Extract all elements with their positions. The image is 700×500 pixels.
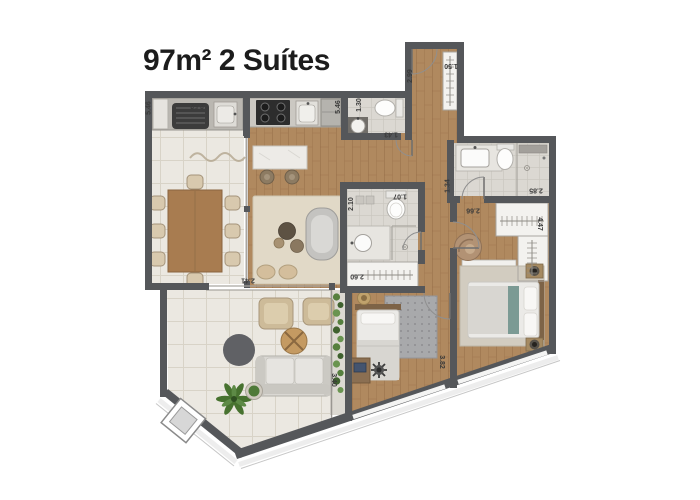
toilet-icon <box>497 144 514 170</box>
wall <box>340 182 425 189</box>
dim-entry-closet: 1.50 <box>444 62 458 69</box>
wall <box>340 186 347 292</box>
wall <box>405 42 464 49</box>
dim-bath2-width: 2.85 <box>529 187 543 194</box>
dim-suite1-depth: 3.82 <box>438 355 445 369</box>
dim-grill-counter: 2.52 <box>190 102 204 109</box>
cooktop-icon <box>256 100 290 125</box>
potted-plant-icon <box>246 383 263 400</box>
dining-chair <box>150 196 165 210</box>
bar-stool-icon <box>260 170 274 184</box>
wall <box>549 136 556 354</box>
pouf-icon <box>257 265 275 279</box>
dining-chair <box>225 224 240 238</box>
desk-chair-icon <box>371 362 387 378</box>
dining-chair <box>150 224 165 238</box>
wall <box>145 283 206 290</box>
wall <box>405 91 412 140</box>
shower-niche <box>519 145 547 153</box>
lounge-armchair <box>306 208 338 260</box>
bed-suite2 <box>468 280 544 340</box>
dim-closet1-width: 2.60 <box>350 273 364 280</box>
wall <box>145 91 152 290</box>
wall <box>418 182 425 232</box>
wall <box>484 196 553 203</box>
wall <box>145 91 410 98</box>
basket-plant-icon <box>358 292 371 305</box>
living-armchair <box>259 298 293 329</box>
kitchen-sink-icon <box>296 101 318 125</box>
dim-entry-hall: 2.99 <box>407 69 414 83</box>
side-table-icon <box>279 223 296 240</box>
wall <box>340 286 425 293</box>
dining-chair <box>225 196 240 210</box>
dim-living-right: 3.40 <box>330 373 337 387</box>
floor-plan: 97m² 2 Suítes <box>0 0 700 500</box>
dim-lavabo-length: 1.43 <box>384 131 398 138</box>
dim-bath1-depth: 2.10 <box>348 197 355 211</box>
wall <box>450 203 457 222</box>
glass-post <box>203 283 209 290</box>
shelf-icon <box>356 196 364 204</box>
wall <box>341 91 348 140</box>
laptop-icon <box>354 363 366 372</box>
side-table-icon <box>274 238 284 248</box>
wall <box>450 248 457 388</box>
dim-suite2-entry: 2.66 <box>466 207 480 214</box>
wall <box>447 196 460 203</box>
dining-chair <box>187 175 203 189</box>
dim-living-door: 2.41 <box>241 277 255 284</box>
dim-bath1-width: 1.07 <box>393 193 407 200</box>
wall <box>243 91 250 136</box>
lounge-furniture <box>253 196 341 284</box>
terrace-cabinet <box>153 99 168 129</box>
washbasin-icon <box>456 145 502 171</box>
washbasin-icon <box>348 117 368 134</box>
living-armchair <box>303 298 334 325</box>
dining-chair <box>225 252 240 266</box>
dining-chair <box>150 252 165 266</box>
side-table-icon <box>291 240 304 253</box>
glass-post <box>244 206 250 212</box>
dim-terrace-left: 5.46 <box>146 101 153 115</box>
sofa <box>256 356 332 396</box>
dim-bath2-left: 1.34 <box>445 179 452 193</box>
wall <box>345 290 352 421</box>
washbasin-icon <box>347 226 390 260</box>
dim-lavabo-width: 1.30 <box>356 98 363 112</box>
round-rug-icon <box>223 334 255 366</box>
terrace-sink-icon <box>214 102 237 127</box>
shelf-icon <box>366 196 374 204</box>
glass-post <box>329 283 335 290</box>
kitchen-island <box>253 146 307 169</box>
coffee-table-icon <box>281 328 307 354</box>
pouf-icon <box>279 265 297 279</box>
glass-post <box>244 132 250 138</box>
bar-stool-icon <box>285 170 299 184</box>
dim-closet2-height: 4.47 <box>536 217 543 231</box>
wall <box>418 250 425 264</box>
wall <box>160 283 167 397</box>
toilet-icon <box>375 99 403 117</box>
desk <box>351 358 370 383</box>
dim-kitchen-right: 5.46 <box>335 100 342 114</box>
wall <box>457 42 464 143</box>
nightstand <box>526 264 543 278</box>
round-armchair <box>455 234 482 261</box>
floor-plan-drawing: 5.46 2.52 5.46 1.30 1.43 2.99 1.50 2.10 … <box>0 0 700 500</box>
wall <box>457 136 556 143</box>
